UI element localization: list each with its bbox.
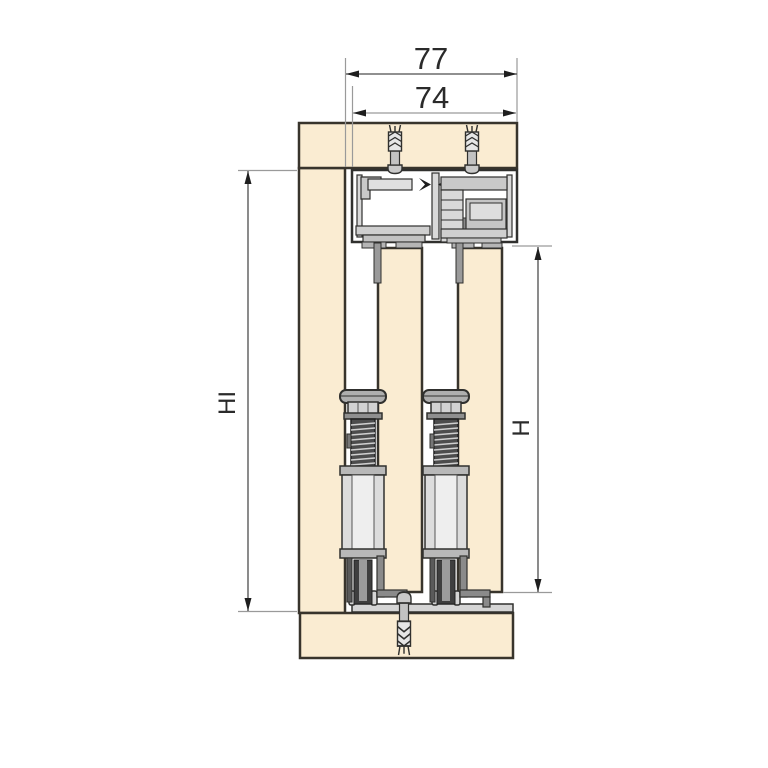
arrow-left-icon	[353, 110, 366, 117]
left-hanger-strap	[374, 243, 381, 283]
top-panel	[299, 123, 517, 168]
dimension-label-overall-width: 77	[414, 41, 448, 76]
diagram-canvas: 77 74 HI H	[0, 0, 768, 768]
wall-plug-bottom	[397, 592, 411, 655]
arrow-down-icon	[245, 598, 252, 611]
dimension-label-inner-width: 74	[415, 80, 449, 115]
left-side-panel	[299, 168, 345, 613]
dimension-label-door-height: H	[508, 419, 535, 436]
arrow-right-icon	[504, 71, 517, 78]
technical-diagram: 77 74 HI H	[0, 0, 768, 768]
arrow-left-icon	[346, 71, 359, 78]
arrow-up-icon	[245, 171, 252, 184]
right-hanger-strap	[456, 243, 463, 283]
dimension-label-interior-height: HI	[214, 391, 241, 415]
wall-plug-top-right	[465, 125, 479, 174]
rail-divider	[432, 173, 439, 239]
dimension-interior-height: HI	[214, 171, 297, 612]
arrow-up-icon	[535, 247, 542, 260]
wall-plug-top-left	[388, 125, 402, 174]
arrow-right-icon	[503, 110, 516, 117]
dimension-door-height: H	[503, 246, 552, 593]
arrow-down-icon	[535, 579, 542, 592]
